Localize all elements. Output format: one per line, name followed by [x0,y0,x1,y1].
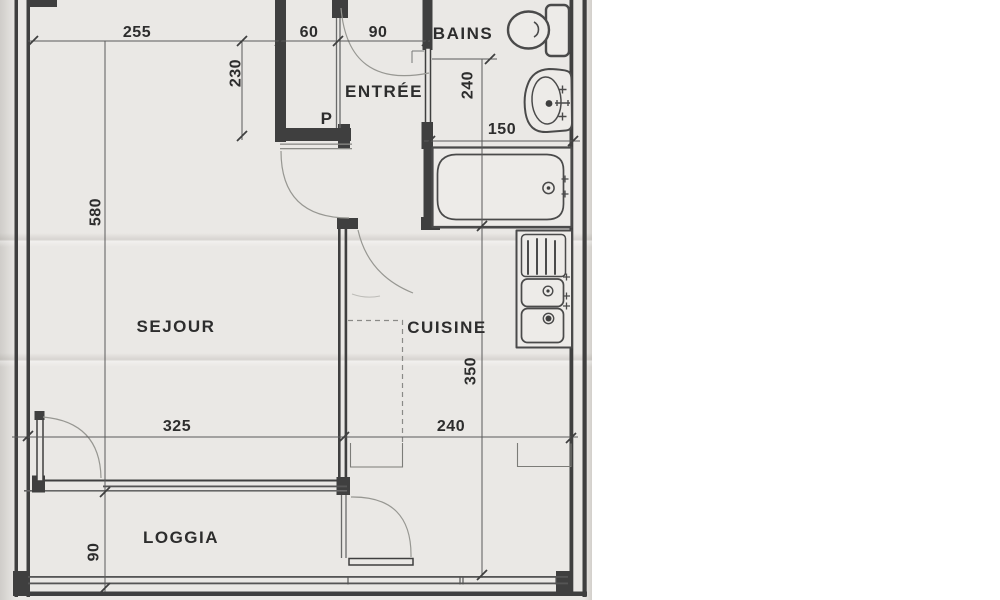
bathtub-icon [433,148,572,228]
scanned-floor-plan: 255 60 90 BAINS ENTRÉE P 230 240 150 580… [0,0,1000,600]
closet-label-p: P [321,109,334,128]
dim-label-240-cuisine: 240 [437,418,465,435]
floor-plan-svg: 255 60 90 BAINS ENTRÉE P 230 240 150 580… [0,0,1000,600]
dim-label-325: 325 [163,418,191,435]
room-label-loggia: LOGGIA [143,528,219,547]
dim-label-90: 90 [369,24,388,41]
dim-label-240-bains: 240 [460,71,477,99]
cuisine-loggia-door-leaf [349,559,413,566]
room-label-sejour: SEJOUR [137,317,216,336]
room-label-cuisine: CUISINE [407,318,486,337]
bathroom-door-leaf [426,48,431,123]
dim-label-150: 150 [488,121,516,138]
paper-background [0,0,592,600]
dim-label-90-loggia: 90 [86,543,103,562]
room-label-entree: ENTRÉE [345,82,423,101]
room-label-bains: BAINS [433,24,493,43]
paper-crease-lower [0,353,592,367]
dim-label-350: 350 [463,357,480,385]
washbasin-icon [525,69,572,132]
dim-label-580: 580 [88,198,105,226]
paper-crease-upper [0,233,592,247]
dim-label-230: 230 [228,59,245,87]
paper-left-edge-shadow [0,0,16,600]
sejour-loggia-door-leaf [37,414,43,481]
dim-label-255: 255 [123,24,151,41]
kitchen-sink-icon [517,231,573,348]
dim-label-60: 60 [300,24,319,41]
